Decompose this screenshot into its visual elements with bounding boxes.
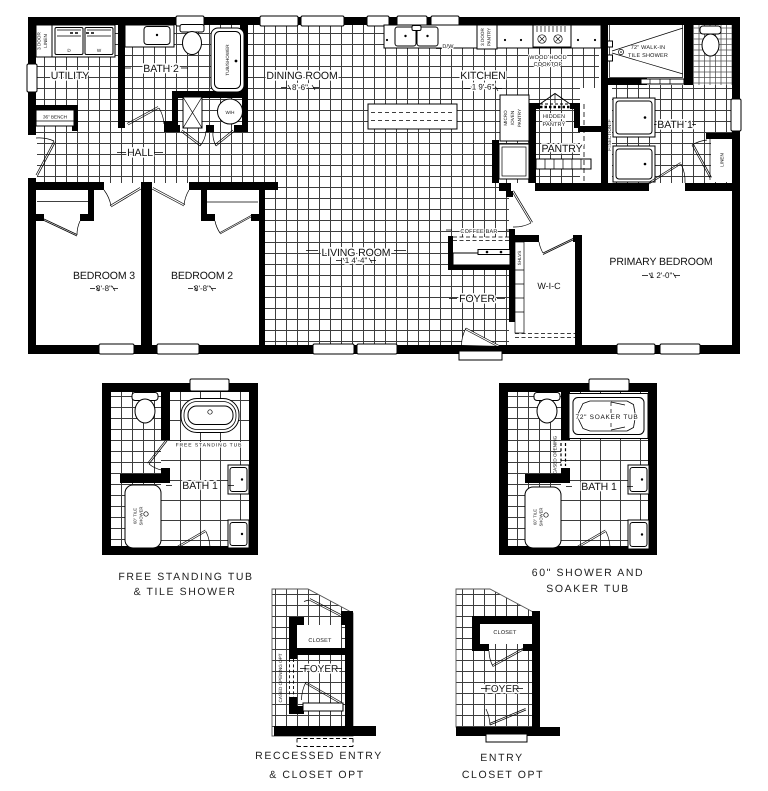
svg-text:FOYER: FOYER (304, 664, 338, 675)
svg-text:COFFEE BAR: COFFEE BAR (460, 229, 497, 235)
svg-text:CLOSET: CLOSET (308, 638, 332, 644)
svg-text:F=SECTION=F: F=SECTION=F (607, 119, 612, 151)
svg-text:DINING ROOM: DINING ROOM (266, 70, 337, 82)
svg-text:3 DOOR: 3 DOOR (480, 28, 485, 46)
svg-text:BATH 1: BATH 1 (581, 481, 617, 493)
svg-text:SHOWER: SHOWER (139, 507, 144, 526)
svg-text:LINEN: LINEN (720, 153, 725, 167)
svg-text:1 9'-6": 1 9'-6" (472, 83, 495, 92)
svg-text:W: W (97, 48, 102, 53)
svg-text:36" BENCH: 36" BENCH (43, 115, 67, 120)
svg-text:TUB/SHOWER: TUB/SHOWER (225, 44, 230, 76)
svg-text:HALL: HALL (127, 147, 153, 159)
svg-text:W/H: W/H (226, 110, 235, 115)
svg-text:CLOSET OPT: CLOSET OPT (462, 769, 544, 781)
svg-text:3 DOOR: 3 DOOR (37, 32, 42, 50)
svg-text:RECCESSED ENTRY: RECCESSED ENTRY (255, 750, 383, 762)
svg-text:60" TILE: 60" TILE (133, 508, 138, 524)
svg-text:TILE SHOWER: TILE SHOWER (628, 53, 668, 59)
svg-text:PANTRY: PANTRY (542, 122, 565, 128)
svg-text:MICRO: MICRO (503, 110, 508, 126)
svg-text:BEDROOM 3: BEDROOM 3 (73, 270, 135, 282)
svg-text:SOAKER TUB: SOAKER TUB (546, 583, 630, 595)
svg-text:FOYER: FOYER (459, 293, 495, 305)
svg-text:8'-6": 8'-6" (292, 83, 308, 92)
svg-text:PANTRY: PANTRY (487, 28, 492, 46)
svg-text:& TILE SHOWER: & TILE SHOWER (134, 586, 237, 598)
svg-text:PANTRY: PANTRY (517, 109, 522, 127)
svg-text:CLOSET: CLOSET (493, 630, 517, 636)
svg-text:ENTRY: ENTRY (480, 752, 523, 764)
svg-text:8'-8": 8'-8" (194, 284, 210, 293)
svg-text:8'-8": 8'-8" (96, 284, 112, 293)
svg-text:FOYER: FOYER (485, 684, 519, 695)
svg-text:60" SHOWER AND: 60" SHOWER AND (532, 567, 644, 579)
svg-text:SHOWER: SHOWER (539, 508, 544, 527)
svg-text:72" SOAKER TUB: 72" SOAKER TUB (576, 414, 639, 421)
svg-text:& CLOSET OPT: & CLOSET OPT (269, 769, 364, 781)
svg-text:PANTRY: PANTRY (541, 143, 582, 155)
svg-text:BATH 1: BATH 1 (182, 480, 218, 492)
svg-text:CASED OPENING: CASED OPENING (553, 435, 558, 474)
svg-text:72" WALK-IN: 72" WALK-IN (631, 45, 666, 51)
svg-text:FREE STANDING TUB: FREE STANDING TUB (176, 443, 243, 449)
svg-text:PRIMARY BEDROOM: PRIMARY BEDROOM (609, 256, 712, 268)
svg-text:1 2'-0": 1 2'-0" (650, 271, 673, 280)
svg-text:HIDDEN: HIDDEN (543, 114, 565, 120)
svg-text:BEDROOM 2: BEDROOM 2 (171, 270, 233, 282)
svg-text:KITCHEN: KITCHEN (460, 70, 505, 82)
svg-text:UTILITY: UTILITY (51, 70, 89, 82)
svg-text:WOOD HOOD: WOOD HOOD (529, 55, 567, 61)
svg-text:1 4'-4": 1 4'-4" (345, 256, 368, 265)
svg-text:BATH 1: BATH 1 (657, 119, 693, 131)
svg-text:SHLVS: SHLVS (517, 251, 522, 266)
svg-text:/OVEN: /OVEN (510, 111, 515, 125)
svg-text:W-I-C: W-I-C (537, 281, 561, 291)
svg-text:BATH 2: BATH 2 (143, 63, 179, 75)
svg-text:60" TILE: 60" TILE (533, 509, 538, 525)
svg-text:LINEN: LINEN (43, 34, 48, 48)
svg-text:D/W: D/W (442, 44, 454, 50)
svg-text:FREE STANDING TUB: FREE STANDING TUB (118, 571, 253, 583)
svg-text:CASED OPENING OPT: CASED OPENING OPT (278, 653, 283, 702)
svg-text:COOKTOP: COOKTOP (534, 62, 563, 68)
